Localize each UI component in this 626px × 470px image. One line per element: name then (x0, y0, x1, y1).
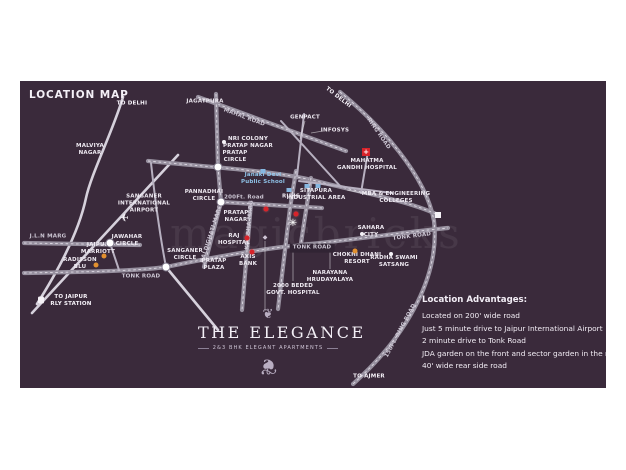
label-to-jaipur-rly: TO JAIPUR RLY STATION (50, 294, 91, 308)
axis-bank-marker (250, 250, 255, 255)
school-marker (261, 169, 266, 173)
mahatma-gandhi-hospital-marker (362, 148, 370, 156)
radisson-blu-marker (94, 263, 99, 268)
label-200ft-road: 200Ft. Road (224, 195, 264, 202)
jawahar-circle-node (106, 239, 115, 248)
pratap-nagar-marker (264, 207, 269, 212)
label-jln-marg: J.L.N MARG (30, 234, 67, 241)
advantage-item: JDA garden on the front and sector garde… (422, 348, 606, 361)
advantage-item: 2 minute drive to Tonk Road (422, 335, 606, 348)
label-radha-swami: RADHA SWAMI SATSANG (370, 255, 418, 269)
label-axis-bank: AXIS BANK (239, 254, 257, 268)
label-mba-colleges: MBA & ENGINEERING COLLEGES (362, 191, 430, 205)
label-tonk-road-west: TONK ROAD (122, 274, 161, 281)
logo-rule-left (198, 348, 209, 349)
label-govt-hospital: 2000 BEDED GOVT. HOSPITAL (266, 283, 319, 297)
label-to-delhi-west: TO DELHI (117, 101, 147, 108)
sahara-city-marker (360, 232, 364, 236)
location-advantages: Location Advantages: Located on 200' wid… (422, 295, 606, 373)
label-genpact: GENPACT (290, 115, 320, 122)
nri-colony-dot (222, 140, 226, 144)
project-logo: ❦ THE ELEGANCE 2&3 BHK ELEGANT APARTMENT… (198, 308, 338, 375)
label-jagatpura: JAGATPURA (186, 99, 223, 106)
advantage-item: Just 5 minute drive to Jaipur Internatio… (422, 323, 606, 336)
advantage-item: Located on 200' wide road (422, 310, 606, 323)
pratap-circle-node (214, 163, 223, 172)
label-pratap-plaza: PRATAP PLAZA (202, 258, 227, 272)
logo-subtitle-row: 2&3 BHK ELEGANT APARTMENTS (198, 345, 338, 351)
label-radisson-blu: RADISSON BLU (63, 257, 97, 271)
ruhs-marker (287, 188, 292, 192)
label-tonk-road-center: TONK ROAD (290, 244, 335, 253)
logo-hanger-diamond (263, 235, 268, 241)
map-title: LOCATION MAP (29, 89, 129, 101)
label-mahatma-gandhi-hospital: MAHATMA GANDHI HOSPITAL (337, 158, 397, 172)
jaipur-marriott-marker (102, 254, 107, 259)
location-map: magicbricks LOCATION MAP TO DELHIJAGATPU… (20, 81, 606, 388)
label-infosys: INFOSYS (321, 128, 349, 135)
label-to-ajmer: TO AJMER (353, 374, 385, 381)
logo-rule-right (327, 348, 338, 349)
chokhi-dhani-marker (353, 249, 358, 254)
project-area-marker (294, 212, 299, 217)
sanganer-circle-node (162, 263, 171, 272)
project-name: THE ELEGANCE (198, 323, 338, 342)
advantages-title: Location Advantages: (422, 295, 606, 305)
page: magicbricks LOCATION MAP TO DELHIJAGATPU… (0, 0, 626, 470)
pannadhai-circle-node (217, 198, 226, 207)
label-nri-colony: NRI COLONY PRATAP NAGAR (223, 136, 273, 150)
label-sitapura-industrial: SITAPURA INDUSTRIAL AREA (287, 188, 346, 202)
label-pratap-circle: PRATAP CIRCLE (223, 150, 248, 164)
radha-swami-marker (389, 252, 393, 256)
ring-junction-marker (435, 212, 441, 218)
project-subtitle: 2&3 BHK ELEGANT APARTMENTS (213, 345, 323, 351)
label-janaki-devi-school: Janaki Devi Public School (241, 172, 285, 186)
label-jawahar-circle: JAWAHAR CIRCLE (112, 234, 143, 248)
airport-plane-icon (119, 213, 128, 224)
factory-icon (316, 184, 321, 188)
label-malviya-nagar: MALVIYA NAGAR (76, 143, 104, 157)
factory-icon (305, 184, 310, 188)
advantage-item: 40' wide rear side road (422, 360, 606, 373)
logo-ornament-bottom-icon: ❦ (259, 355, 277, 375)
label-pratap-nagar: PRATAP NAGAR (224, 210, 249, 224)
logo-ornament-top-icon: ❦ (198, 308, 338, 321)
raj-hospital-marker (245, 236, 250, 241)
railway-station-icon (38, 297, 44, 304)
label-narayana-hrudayalaya: NARAYANA HRUDAYALAYA (307, 270, 353, 284)
label-sanganer-circle: SANGANER CIRCLE (167, 248, 203, 262)
project-location-star (289, 219, 297, 229)
